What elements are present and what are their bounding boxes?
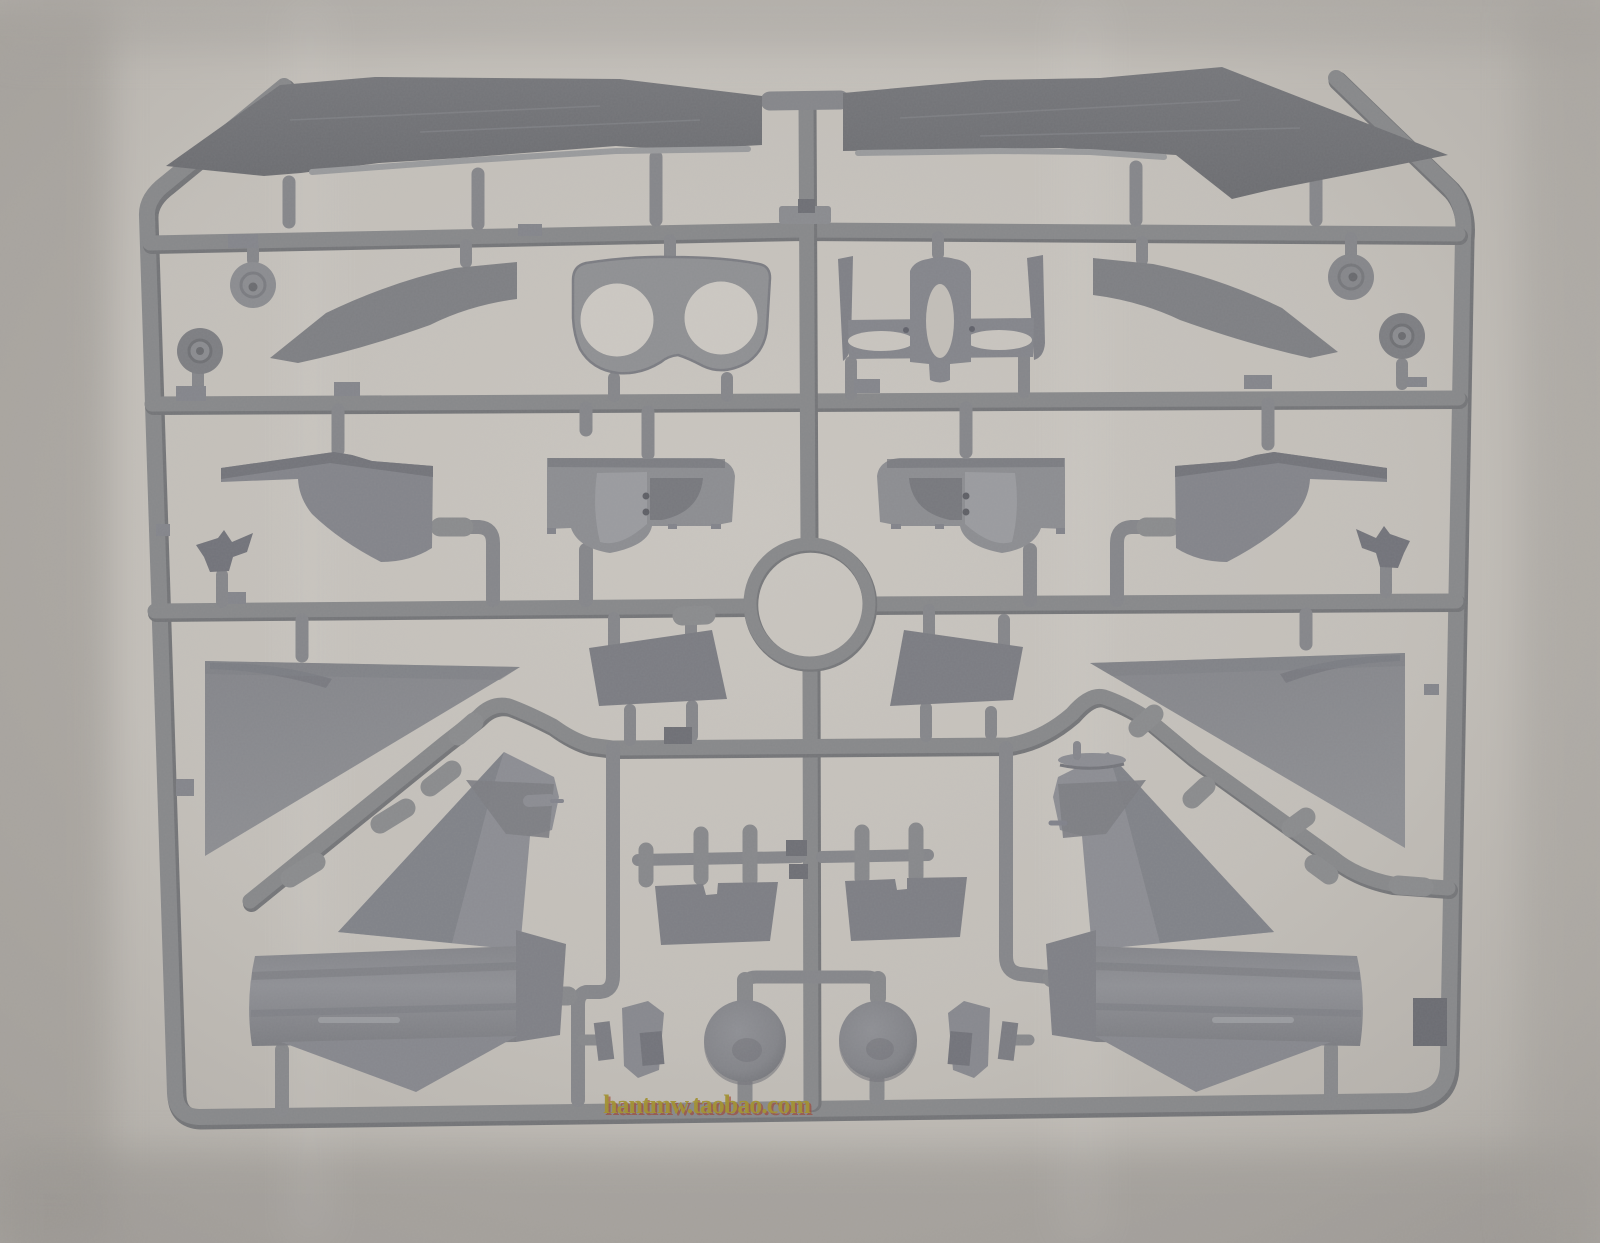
svg-text:hantmw.taobao.com: hantmw.taobao.com <box>603 1090 811 1119</box>
